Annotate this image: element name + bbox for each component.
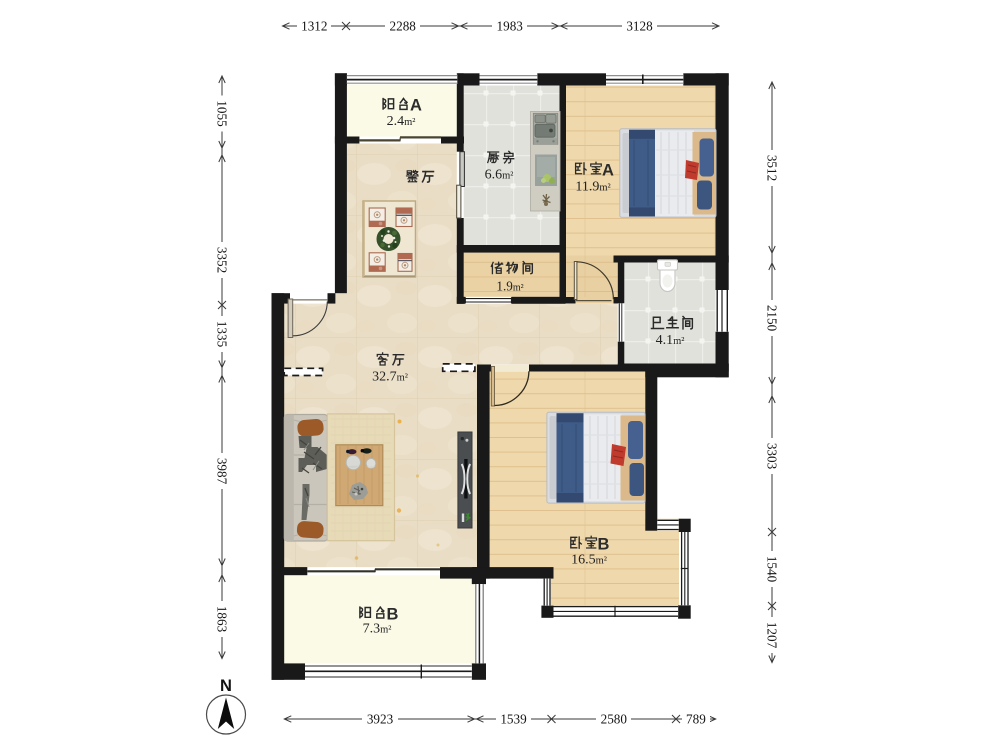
svg-text:3987: 3987 [214, 458, 229, 485]
svg-text:3923: 3923 [367, 712, 394, 727]
svg-text:1335: 1335 [214, 321, 229, 348]
svg-text:B: B [387, 605, 399, 623]
svg-text:16.5m²: 16.5m² [571, 553, 607, 568]
svg-text:A: A [602, 161, 614, 179]
svg-text:3352: 3352 [214, 247, 229, 273]
svg-text:32.7m²: 32.7m² [372, 370, 408, 385]
svg-text:1983: 1983 [497, 19, 524, 34]
svg-text:2580: 2580 [601, 712, 628, 727]
svg-text:1539: 1539 [500, 712, 527, 727]
svg-text:789: 789 [686, 712, 706, 727]
svg-text:B: B [598, 535, 610, 553]
svg-text:2288: 2288 [390, 19, 417, 34]
svg-text:3128: 3128 [626, 19, 653, 34]
svg-text:1055: 1055 [214, 100, 229, 127]
svg-text:N: N [220, 677, 232, 695]
svg-text:6.6m²: 6.6m² [485, 168, 514, 183]
svg-text:1540: 1540 [764, 556, 779, 583]
svg-text:11.9m²: 11.9m² [575, 180, 610, 195]
svg-text:4.1m²: 4.1m² [656, 333, 685, 348]
svg-text:1863: 1863 [214, 606, 229, 633]
svg-text:1312: 1312 [301, 19, 327, 34]
svg-text:3303: 3303 [764, 443, 779, 470]
svg-text:3512: 3512 [764, 155, 779, 181]
svg-text:A: A [410, 96, 422, 114]
svg-text:2.4m²: 2.4m² [387, 114, 416, 129]
svg-text:7.3m²: 7.3m² [363, 622, 392, 637]
svg-text:1207: 1207 [764, 622, 779, 649]
svg-text:2150: 2150 [764, 305, 779, 332]
